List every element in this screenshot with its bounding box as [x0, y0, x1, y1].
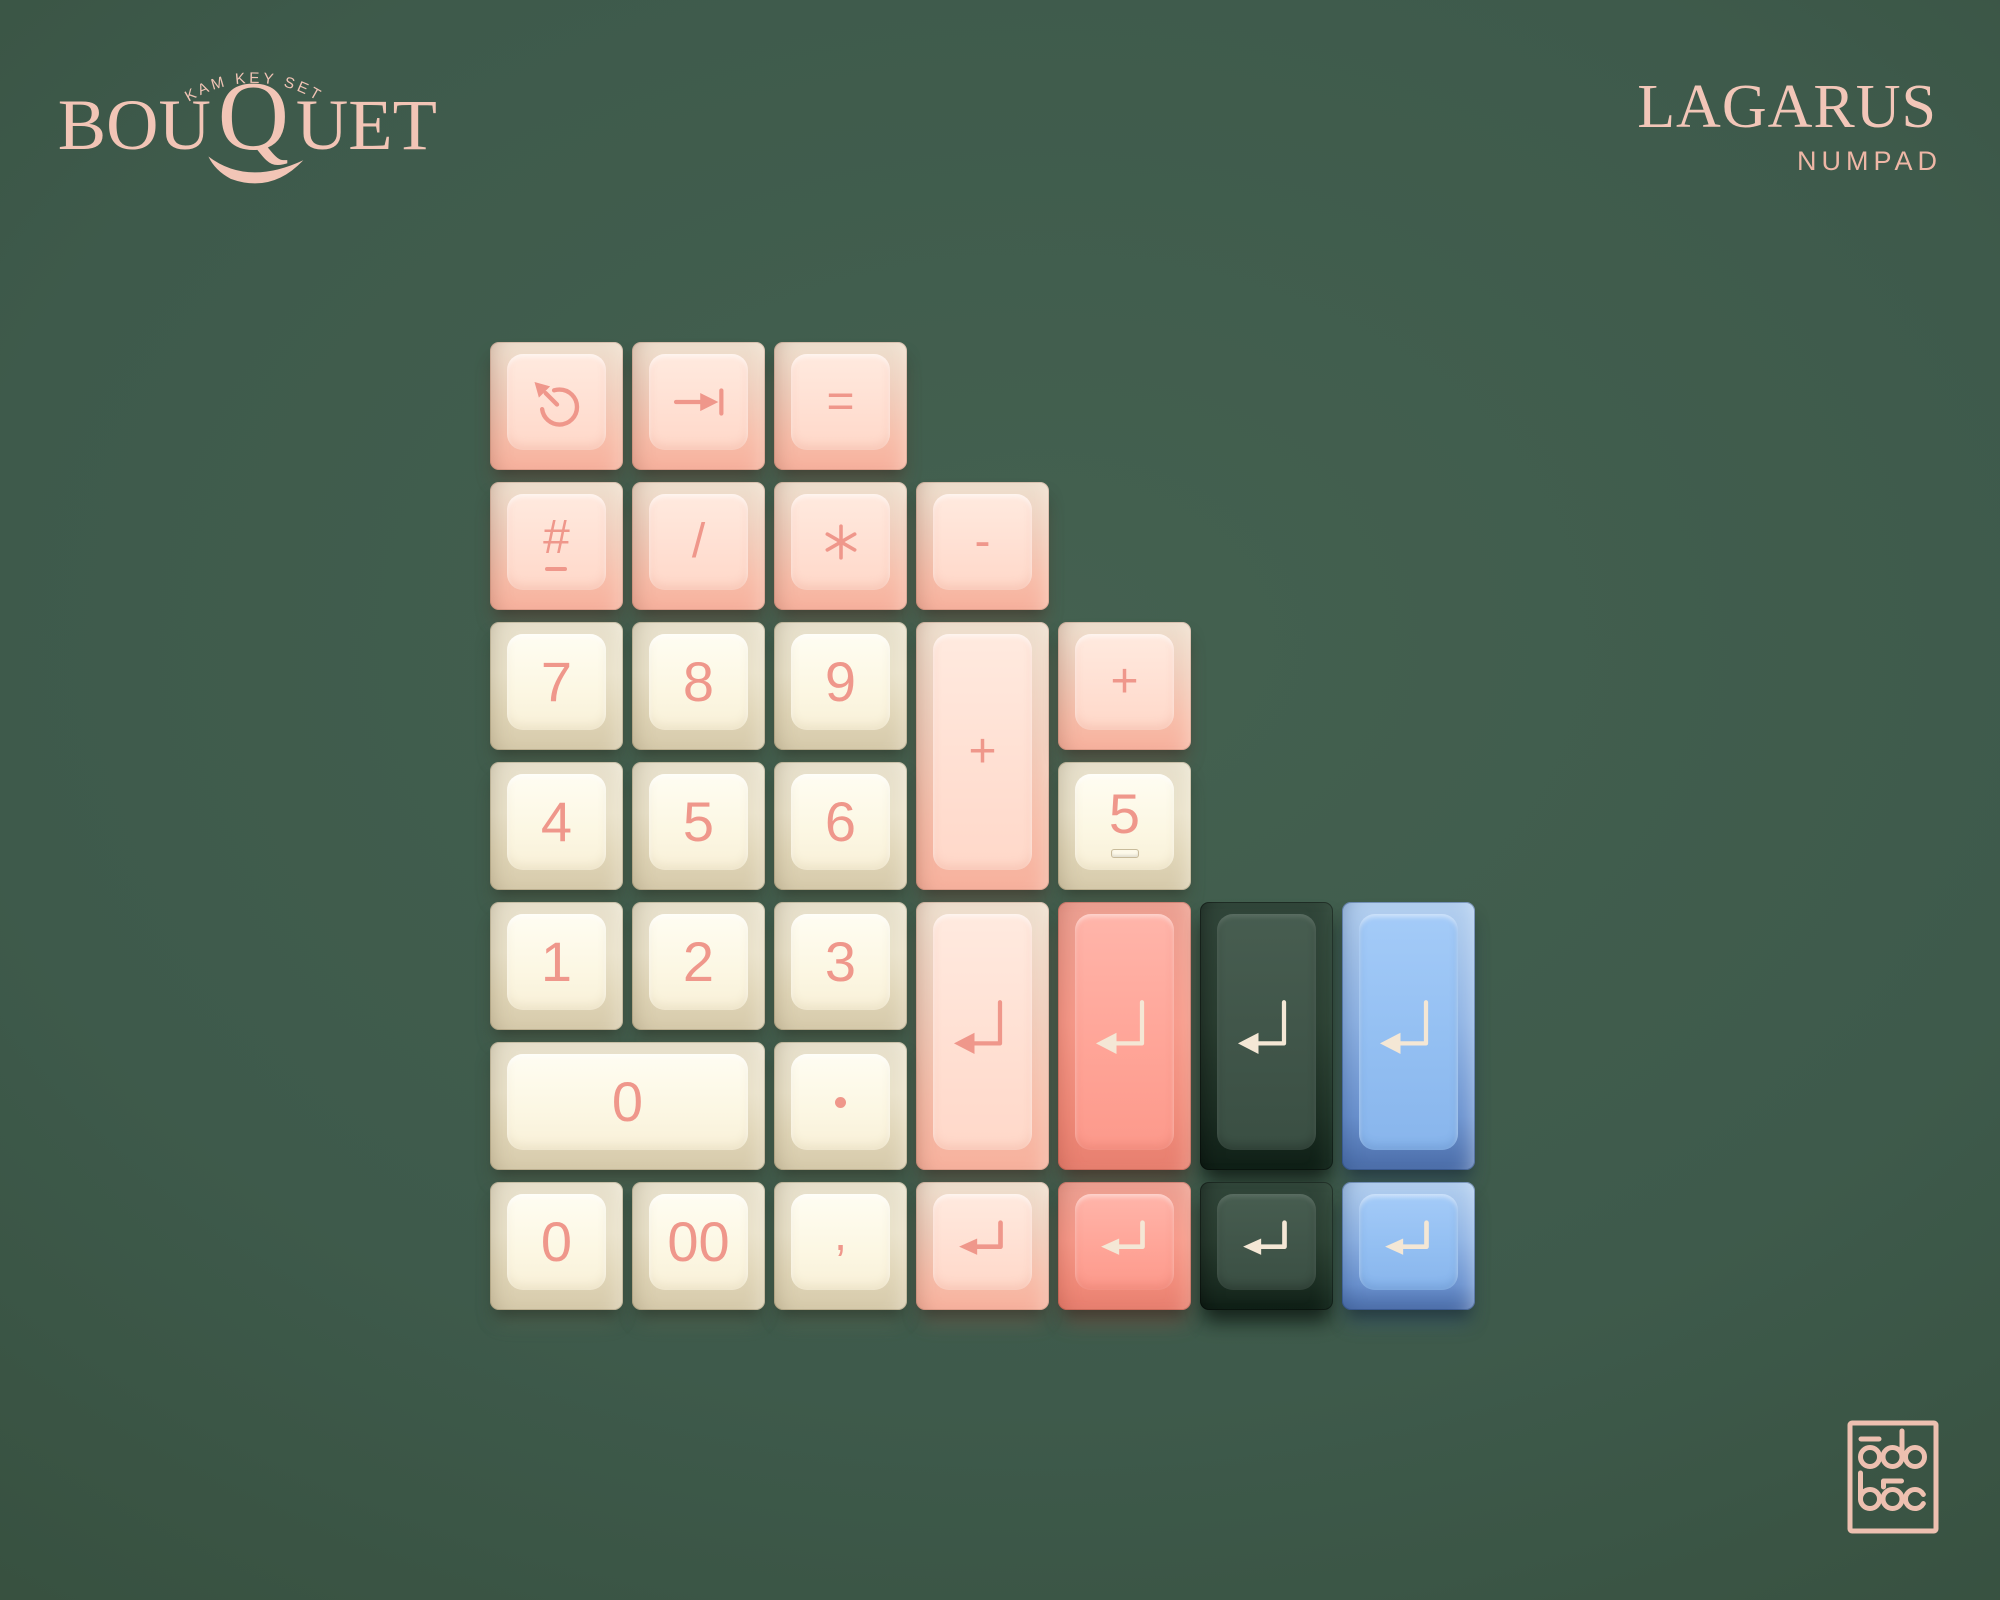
enter-arrow-icon: [1097, 1219, 1153, 1265]
enter-arrow-icon: [1233, 998, 1301, 1066]
key-comma: ,: [774, 1182, 907, 1310]
keycap-legend-group: 3: [825, 934, 856, 990]
keycap-face: 0: [507, 1194, 606, 1290]
key-eight: 8: [632, 622, 765, 750]
key-decimal: [774, 1042, 907, 1170]
keycap-face: 2: [649, 914, 748, 1010]
keycap-legend-group: [1091, 998, 1159, 1066]
homing-bar: [1111, 849, 1139, 858]
key-enter-salmon: [1058, 1182, 1191, 1310]
key-enter-pink-tall: [916, 902, 1049, 1170]
keycap-legend-group: 2: [683, 934, 714, 990]
keycap-face: [933, 1194, 1032, 1290]
enter-arrow-icon: [1381, 1219, 1437, 1265]
key-plus-tall: +: [916, 622, 1049, 890]
keycap-face: 7: [507, 634, 606, 730]
keycap-legend-group: [670, 373, 728, 431]
keycap-legend: 5: [683, 794, 714, 850]
keycap-legend: /: [692, 518, 705, 566]
keycap-face: 00: [649, 1194, 748, 1290]
keycap-legend: 2: [683, 934, 714, 990]
key-asterisk: [774, 482, 907, 610]
keycap-legend: 3: [825, 934, 856, 990]
keycap-face: 5: [1075, 774, 1174, 870]
keycap-face: [791, 494, 890, 590]
keycap-face: 1: [507, 914, 606, 1010]
keycap-legend-group: [949, 998, 1017, 1066]
keycap-legend-group: 00: [667, 1214, 729, 1270]
keycap-face: [507, 354, 606, 450]
key-enter-blue-tall: [1342, 902, 1475, 1170]
enter-arrow-icon: [955, 1219, 1011, 1265]
keycap-legend: 00: [667, 1214, 729, 1270]
key-six: 6: [774, 762, 907, 890]
key-enter-pink: [916, 1182, 1049, 1310]
key-plus: +: [1058, 622, 1191, 750]
keycap-legend-group: 5: [1109, 786, 1140, 858]
keycap-legend: +: [1110, 658, 1138, 706]
keycap-face: [791, 1054, 890, 1150]
key-enter-salmon-tall: [1058, 902, 1191, 1170]
keycap-face: [1075, 914, 1174, 1150]
key-double-zero: 00: [632, 1182, 765, 1310]
dot-legend: [835, 1097, 846, 1108]
keycap-legend: #: [543, 514, 570, 562]
key-enter-blue: [1342, 1182, 1475, 1310]
keycap-legend-group: [1381, 1219, 1437, 1265]
keycap-face: 5: [649, 774, 748, 870]
key-five: 5: [632, 762, 765, 890]
keycap-legend: 4: [541, 794, 572, 850]
key-hash: #: [490, 482, 623, 610]
key-equals: =: [774, 342, 907, 470]
keycap-legend-group: 4: [541, 794, 572, 850]
keycap-legend-group: 1: [541, 934, 572, 990]
keycap-legend: 0: [541, 1214, 572, 1270]
keycap-legend: +: [968, 728, 996, 776]
keycap-legend-group: [1097, 1219, 1153, 1265]
cycle-arrow-icon: [527, 372, 587, 432]
key-five-homing: 5: [1058, 762, 1191, 890]
key-enter-green-tall: [1200, 902, 1333, 1170]
key-three: 3: [774, 902, 907, 1030]
keycap-face: [1217, 1194, 1316, 1290]
keycap-face: #: [507, 494, 606, 590]
keycap-face: /: [649, 494, 748, 590]
keycap-legend-group: 0: [541, 1214, 572, 1270]
keycap-face: 0: [507, 1054, 748, 1150]
keycap-legend-group: ,: [834, 1219, 847, 1265]
key-slash: /: [632, 482, 765, 610]
enter-arrow-icon: [1239, 1219, 1295, 1265]
key-four: 4: [490, 762, 623, 890]
keypad: =#/-789++45651230000,: [0, 0, 2000, 1600]
key-enter-green: [1200, 1182, 1333, 1310]
keycap-legend-group: [835, 1097, 846, 1108]
keycap-face: [649, 354, 748, 450]
key-one: 1: [490, 902, 623, 1030]
keycap-legend-group: [527, 372, 587, 432]
enter-arrow-icon: [949, 998, 1017, 1066]
keycap-face: 9: [791, 634, 890, 730]
keycap-legend-group: +: [1110, 658, 1138, 706]
keycap-legend-group: [1375, 998, 1443, 1066]
keycap-face: 8: [649, 634, 748, 730]
keycap-face: [1359, 914, 1458, 1150]
keycap-legend: 0: [612, 1074, 643, 1130]
enter-arrow-icon: [1375, 998, 1443, 1066]
enter-arrow-icon: [1091, 998, 1159, 1066]
tab-arrow-icon: [670, 373, 728, 431]
asterisk-icon: [822, 523, 860, 561]
keycap-face: -: [933, 494, 1032, 590]
keycap-face: 3: [791, 914, 890, 1010]
legend-underline-bar: [545, 567, 567, 571]
keycap-legend-group: 6: [825, 794, 856, 850]
keycap-face: +: [1075, 634, 1174, 730]
keycap-face: =: [791, 354, 890, 450]
key-tab: [632, 342, 765, 470]
keycap-legend: 7: [541, 654, 572, 710]
keycap-legend: ,: [834, 1211, 847, 1257]
keycap-legend: 8: [683, 654, 714, 710]
keycap-face: 6: [791, 774, 890, 870]
key-nine: 9: [774, 622, 907, 750]
keycap-legend-group: [1233, 998, 1301, 1066]
key-minus: -: [916, 482, 1049, 610]
keycap-legend-group: 5: [683, 794, 714, 850]
keycap-legend-group: [955, 1219, 1011, 1265]
key-two: 2: [632, 902, 765, 1030]
poster: KAM KEY SET BOUQUET LAGARUS NUMPAD =#/-7…: [0, 0, 2000, 1600]
keycap-legend-group: [822, 523, 860, 561]
keycap-legend-group: #: [543, 514, 570, 571]
keycap-legend: -: [975, 518, 991, 566]
key-cycle: [490, 342, 623, 470]
maker-logo: [1847, 1420, 1939, 1534]
key-seven: 7: [490, 622, 623, 750]
keycap-face: [1075, 1194, 1174, 1290]
keycap-legend-group: 8: [683, 654, 714, 710]
keycap-face: [933, 914, 1032, 1150]
keycap-legend-group: 0: [612, 1074, 643, 1130]
keycap-legend: =: [826, 378, 854, 426]
key-zero: 0: [490, 1182, 623, 1310]
keycap-legend-group: [1239, 1219, 1295, 1265]
keycap-legend-group: /: [692, 518, 705, 566]
key-zero-wide: 0: [490, 1042, 765, 1170]
keycap-legend: 6: [825, 794, 856, 850]
keycap-face: [1217, 914, 1316, 1150]
keycap-legend: 5: [1109, 786, 1140, 842]
keycap-legend-group: 7: [541, 654, 572, 710]
keycap-face: +: [933, 634, 1032, 870]
keycap-legend-group: =: [826, 378, 854, 426]
keycap-face: [1359, 1194, 1458, 1290]
keycap-legend-group: -: [975, 518, 991, 566]
keycap-face: 4: [507, 774, 606, 870]
keycap-legend-group: 9: [825, 654, 856, 710]
keycap-legend: 1: [541, 934, 572, 990]
keycap-legend: 9: [825, 654, 856, 710]
keycap-face: ,: [791, 1194, 890, 1290]
keycap-legend-group: +: [968, 728, 996, 776]
